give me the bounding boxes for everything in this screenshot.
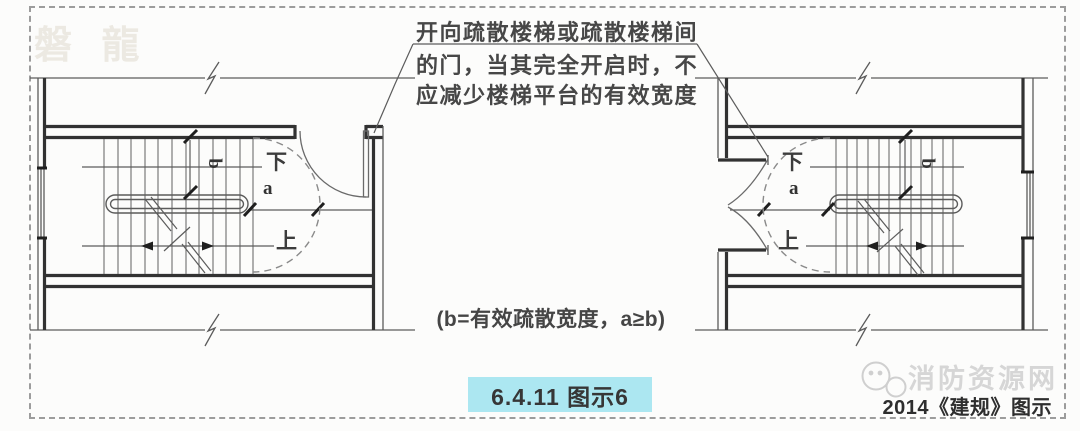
direction-arrow-right [916, 242, 928, 251]
direction-arrow-right [202, 242, 214, 251]
right-dim-b-label: b [918, 158, 937, 169]
callout-note-line3: 应减少楼梯平台的有效宽度 [407, 78, 707, 110]
left-down-label: 下 [266, 152, 287, 173]
right-dim-a-label: a [789, 179, 799, 198]
right-wall [374, 126, 384, 330]
door-swing-arc [300, 131, 366, 197]
code-illustration-page: 磐 龍 [0, 0, 1080, 431]
handrail [830, 195, 962, 213]
source-credit: 2014《建规》图示 [878, 391, 1052, 420]
left-wall [718, 78, 768, 330]
left-floor-plan [30, 62, 415, 346]
break-symbol [856, 314, 870, 346]
bottom-wall [45, 276, 375, 287]
left-dim-a-label: a [263, 179, 273, 198]
leader-to-right-door [697, 44, 768, 157]
break-symbol [205, 62, 219, 94]
right-down-label: 下 [782, 152, 803, 173]
callout-note-line1: 开向疏散楼梯或疏散楼梯间 [407, 15, 707, 47]
handrail [106, 195, 248, 213]
left-dim-b-label: b [205, 158, 224, 169]
dimension-a [730, 203, 834, 216]
left-wall [37, 78, 47, 330]
bottom-wall [727, 276, 1023, 287]
right-wall [1021, 78, 1034, 330]
figure-number-band: 6.4.11 图示6 [468, 377, 652, 412]
dimension-b [899, 130, 912, 199]
effective-width-note: (b=有效疏散宽度，a≥b) [424, 303, 678, 333]
door-leaf [364, 131, 369, 197]
top-wall [45, 125, 383, 139]
break-symbol [856, 62, 870, 94]
right-floor-plan [695, 62, 1048, 346]
direction-arrow-left [141, 242, 153, 251]
callout-note-line2: 的门，当其完全开启时，不 [407, 48, 707, 80]
break-symbol [205, 314, 219, 346]
top-wall [727, 127, 1023, 138]
door-leaf-upper [728, 159, 768, 205]
dimension-a [244, 203, 372, 216]
left-up-label: 上 [276, 231, 297, 252]
right-up-label: 上 [778, 231, 799, 252]
stair-treads [104, 139, 253, 274]
